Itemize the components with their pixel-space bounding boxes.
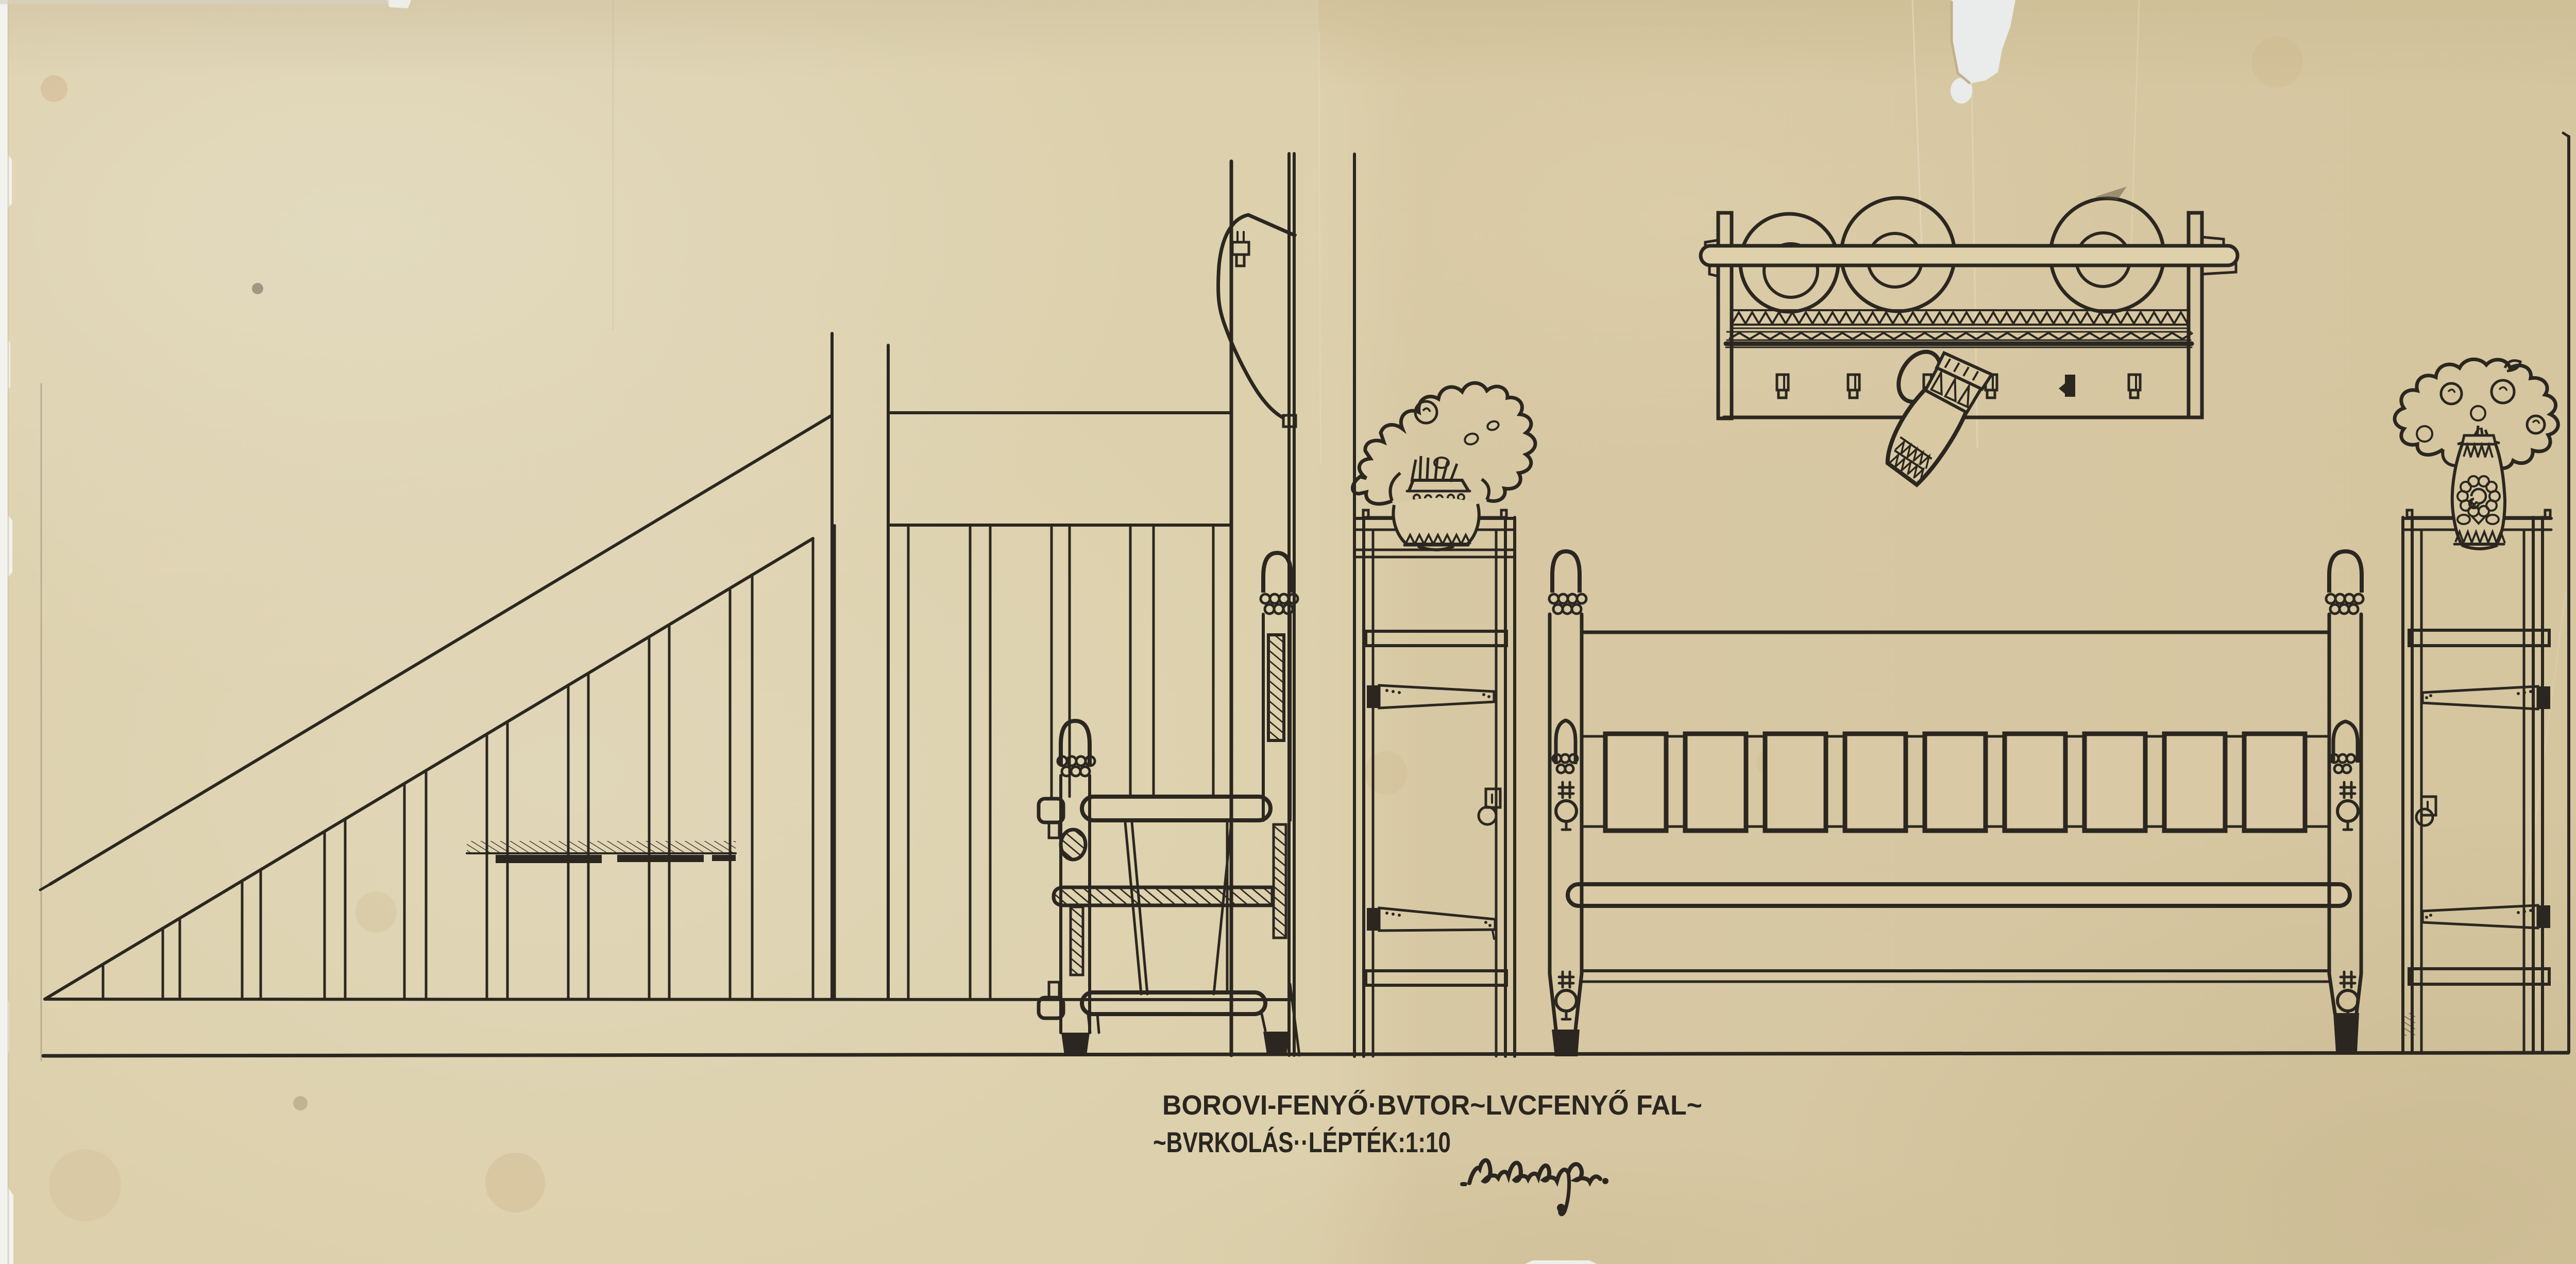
svg-text:BOROVI-FENYŐ·BVTOR~LVCFENYŐ FA: BOROVI-FENYŐ·BVTOR~LVCFENYŐ FAL~ (1162, 1090, 1702, 1121)
svg-text:~BVRKOLÁS··LÉPTÉK:1:10: ~BVRKOLÁS··LÉPTÉK:1:10 (1153, 1126, 1451, 1158)
